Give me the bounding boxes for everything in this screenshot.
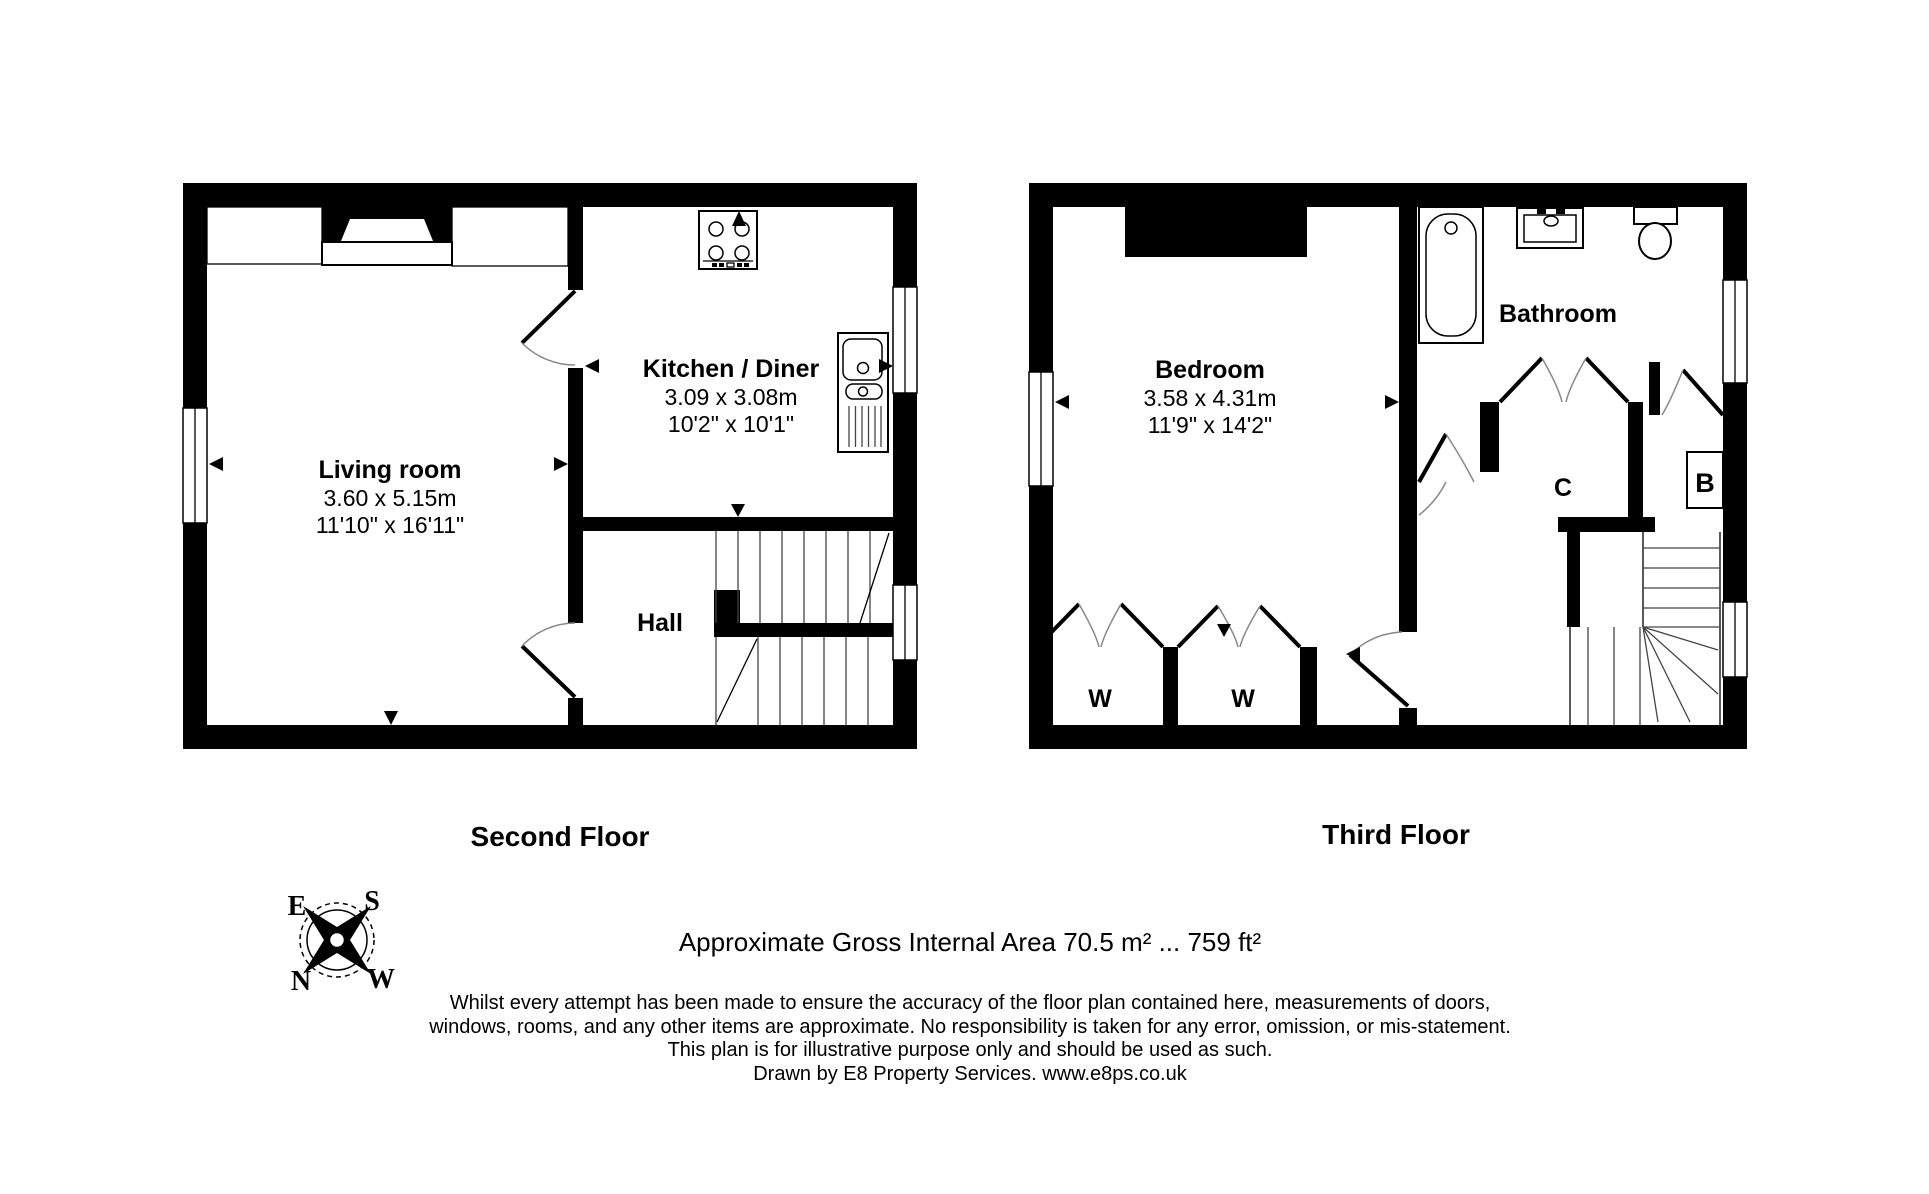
fireplace [207, 207, 568, 266]
sink-icon [838, 333, 888, 452]
third-floor-title: Third Floor [1322, 819, 1470, 850]
cupboard-label: C [1554, 474, 1572, 502]
second-floor-plan: Living room 3.60 x 5.15m 11'10" x 16'11"… [183, 183, 917, 749]
credit-line: Drawn by E8 Property Services. www.e8ps.… [753, 1063, 1188, 1085]
window [183, 408, 207, 523]
bathtub-icon [1419, 207, 1483, 343]
stairs-third-floor [1570, 532, 1720, 725]
bedroom-imperial: 11'9" x 14'2" [1148, 412, 1272, 438]
measure-arrow-right-icon [1385, 395, 1399, 409]
wardrobe-doors [1037, 604, 1300, 647]
measure-arrow-left-icon [585, 359, 599, 373]
bathroom-label: Bathroom [1499, 300, 1617, 328]
disclaimer-line: This plan is for illustrative purpose on… [668, 1039, 1273, 1061]
living-room-label: Living room [318, 456, 461, 484]
footer: Approximate Gross Internal Area 70.5 m² … [428, 927, 1511, 1085]
wardrobe-label: W [1088, 685, 1112, 713]
second-floor-interior-walls [568, 207, 893, 725]
third-floor-plan: Bedroom 3.58 x 4.31m 11'9" x 14'2" Bathr… [1029, 183, 1747, 749]
door-living-hall [522, 623, 575, 697]
window [893, 585, 917, 660]
basin-icon [1517, 205, 1583, 248]
measure-arrow-down-icon [384, 711, 398, 725]
boiler-label: B [1695, 468, 1715, 498]
door-bathroom [1419, 434, 1474, 515]
door-bedroom [1350, 632, 1408, 706]
measure-arrow-left-icon [1055, 395, 1069, 409]
measure-arrow-down-icon [731, 504, 745, 517]
kitchen-diner-label: Kitchen / Diner [643, 355, 820, 383]
measure-arrow-left-icon [209, 457, 223, 471]
living-room-imperial: 11'10" x 16'11" [316, 512, 464, 538]
third-floor-interior-walls [1163, 207, 1660, 725]
measure-arrow-right-icon [554, 457, 568, 471]
second-floor-outer-walls [183, 183, 917, 749]
wardrobe-label: W [1231, 685, 1255, 713]
compass-east-label: E [288, 891, 307, 922]
compass-west-label: W [367, 964, 395, 995]
compass-south-label: S [364, 886, 380, 917]
kitchen-diner-imperial: 10'2" x 10'1" [668, 411, 794, 437]
living-room-metric: 3.60 x 5.15m [324, 485, 457, 511]
floor-plan-page: Living room 3.60 x 5.15m 11'10" x 16'11"… [0, 0, 1929, 1194]
window [1029, 372, 1053, 486]
hall-label: Hall [637, 609, 683, 637]
door-living-kitchen [522, 291, 575, 365]
disclaimer-line: Whilst every attempt has been made to en… [450, 992, 1491, 1014]
second-floor-title: Second Floor [471, 821, 650, 852]
cupboard-doors [1500, 358, 1628, 402]
compass-north-label: N [291, 966, 311, 997]
bedroom-metric: 3.58 x 4.31m [1144, 385, 1277, 411]
bedroom-label: Bedroom [1155, 356, 1265, 384]
window [1723, 280, 1747, 383]
compass-rose-icon: E S N W [288, 886, 395, 997]
toilet-icon [1634, 207, 1677, 259]
gross-internal-area-text: Approximate Gross Internal Area 70.5 m² … [679, 927, 1262, 957]
chimney-breast [1125, 207, 1307, 257]
measure-arrow-down-icon [1217, 624, 1231, 637]
kitchen-diner-metric: 3.09 x 3.08m [665, 384, 798, 410]
disclaimer-line: windows, rooms, and any other items are … [428, 1016, 1511, 1038]
window [893, 287, 917, 393]
stove-icon [699, 211, 757, 269]
window [1723, 602, 1747, 677]
